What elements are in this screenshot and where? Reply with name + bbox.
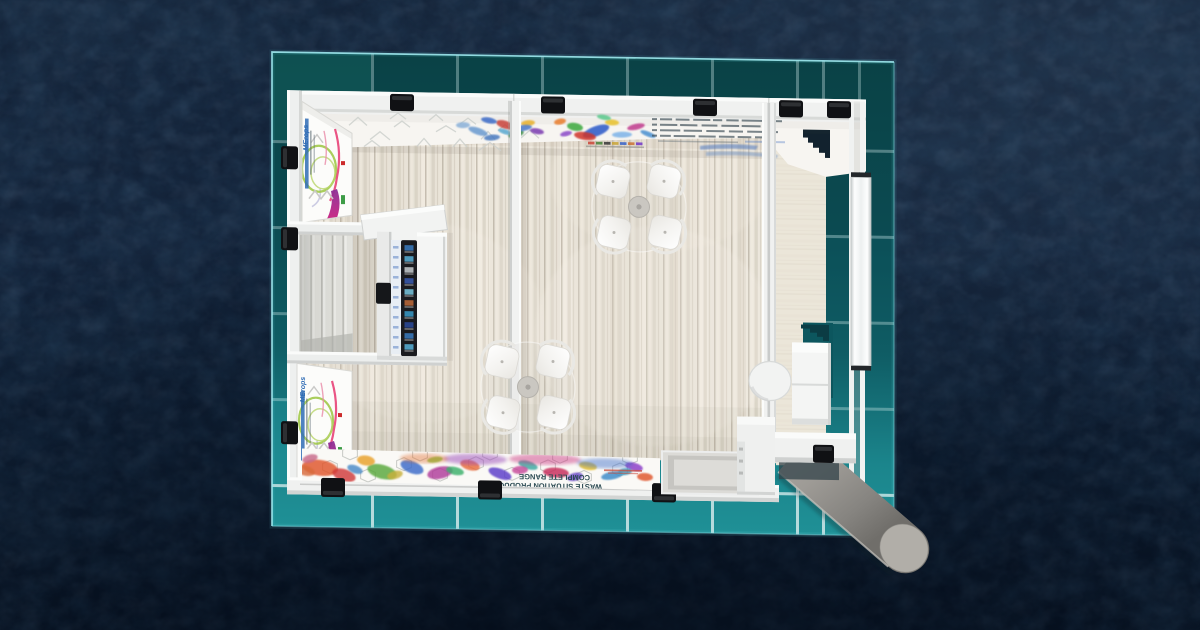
svg-text:COMPLETE RANGE: COMPLETE RANGE <box>519 472 590 482</box>
